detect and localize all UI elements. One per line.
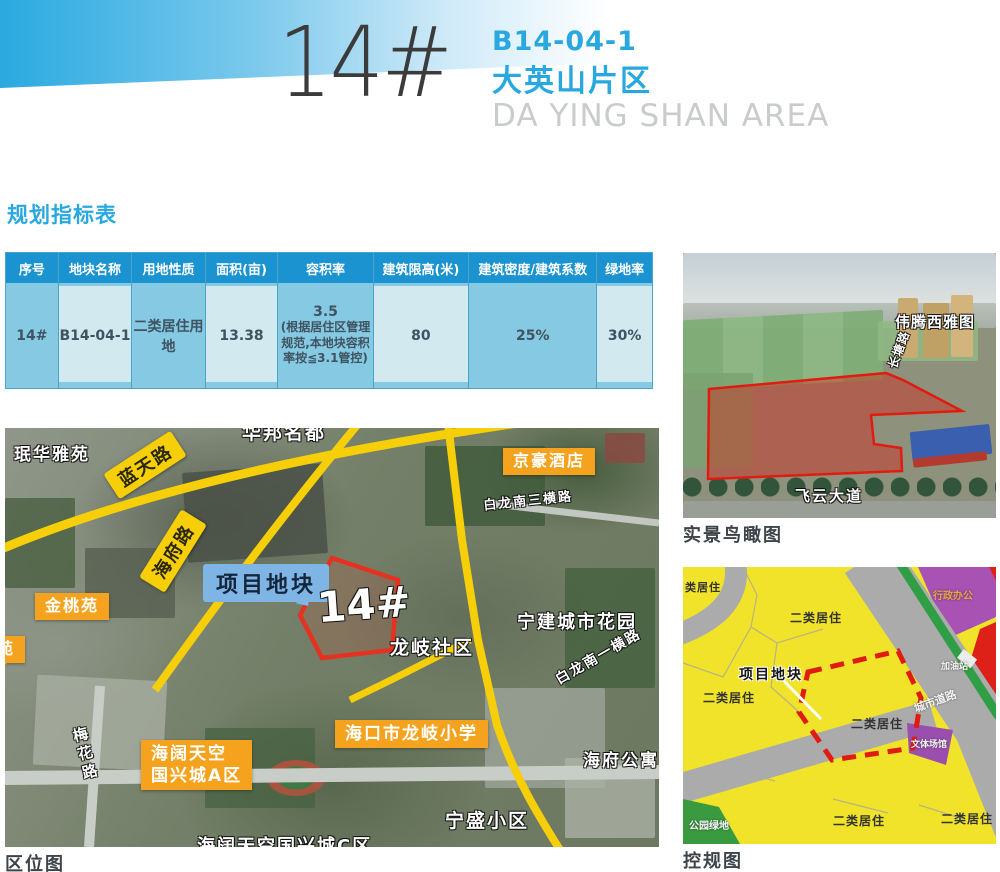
zone-label-park: 公园绿地 (689, 817, 729, 832)
zone-label-residential-top: 二类居住 (790, 609, 842, 626)
label-xingcheng-c: 海阔天空国兴城C区 (197, 832, 372, 847)
zoning-caption: 控规图 (683, 847, 743, 872)
col-green-ratio: 绿地率 (596, 253, 652, 283)
far-note: (根据居住区管理规范,本地块容积率按≦3.1管控) (278, 320, 372, 367)
zone-label-project: 项目地块 (739, 664, 803, 684)
col-height-limit: 建筑限高(米) (373, 253, 468, 283)
cell-height-limit: 80 (373, 283, 468, 388)
cell-density: 25% (468, 283, 596, 388)
zone-label-admin: 行政办公 (933, 587, 973, 602)
planning-indicator-table: 序号 地块名称 用地性质 面积(亩) 容积率 建筑限高(米) 建筑密度/建筑系数… (5, 252, 653, 389)
haikuotiankong-line1: 海阔天空 (151, 744, 227, 764)
zone-label-residential-plot: 二类居住 (851, 715, 903, 732)
label-haifu-apartment: 海府公寓 (583, 746, 659, 771)
plot-code: B14-04-1 (492, 26, 637, 57)
cell-green-ratio: 30% (596, 283, 652, 388)
plot-number: 14# (278, 6, 450, 119)
zone-label-residential-partial: 类居住 (685, 579, 721, 595)
location-map-caption: 区位图 (5, 850, 65, 872)
label-minhua: 珉华雅苑 (14, 440, 90, 465)
col-landuse: 用地性质 (131, 253, 205, 283)
location-map: 珉华雅苑 华邦名都 蓝天路 京豪酒店 白龙南三横路 海府路 项目地块 14# 龙… (5, 428, 659, 847)
label-yuan-partial: 苑 (5, 636, 25, 663)
aerial-photo: 伟腾西雅图 长塘路 飞云大道 (683, 253, 996, 518)
label-plot-mark: 14# (315, 577, 412, 632)
label-jinghao-hotel: 京豪酒店 (503, 448, 595, 475)
cell-area: 13.38 (205, 283, 278, 388)
district-name: 大英山片区 (492, 56, 652, 100)
zoning-map: 类居住 二类居住 二类居住 二类居住 二类居住 二类居住 项目地块 行政办公 加… (683, 567, 996, 844)
col-area: 面积(亩) (205, 253, 278, 283)
cell-far: 3.5 (根据居住区管理规范,本地块容积率按≦3.1管控) (277, 283, 372, 388)
label-jintao: 金桃苑 (35, 593, 109, 620)
page: 14# B14-04-1 大英山片区 DA YING SHAN AREA 规划指… (0, 0, 1000, 872)
col-serial: 序号 (6, 253, 58, 283)
aerial-caption: 实景鸟瞰图 (683, 521, 783, 547)
label-ningsheng: 宁盛小区 (445, 806, 529, 833)
aerial-overlay (683, 253, 996, 518)
col-density: 建筑密度/建筑系数 (468, 253, 596, 283)
table-data-row: 14# B14-04-1 二类居住用地 13.38 3.5 (根据居住区管理规范… (6, 283, 652, 388)
label-haikuotiankong: 海阔天空 国兴城A区 (141, 740, 252, 790)
zone-label-residential-bottom: 二类居住 (833, 812, 885, 829)
haikuotiankong-line2: 国兴城A区 (151, 766, 242, 786)
cell-serial: 14# (6, 283, 58, 388)
col-far: 容积率 (277, 253, 372, 283)
zone-label-residential-bottom-right: 二类居住 (941, 810, 993, 827)
label-ningjian: 宁建城市花园 (517, 608, 637, 634)
cell-plot-name: B14-04-1 (58, 283, 132, 388)
aerial-project-boundary (708, 373, 962, 479)
table-title: 规划指标表 (7, 199, 117, 229)
zone-label-venue: 文体场馆 (911, 737, 947, 750)
label-weiteng: 伟腾西雅图 (895, 311, 975, 332)
zone-label-gas: 加油站 (941, 659, 968, 672)
label-feiyun-avenue: 飞云大道 (795, 485, 863, 506)
label-longqi-community: 龙岐社区 (390, 633, 474, 660)
table-header-row: 序号 地块名称 用地性质 面积(亩) 容积率 建筑限高(米) 建筑密度/建筑系数… (6, 253, 652, 283)
cell-landuse: 二类居住用地 (131, 283, 205, 388)
label-longqi-school: 海口市龙岐小学 (335, 720, 488, 748)
zone-label-residential-left: 二类居住 (703, 689, 755, 706)
district-name-en: DA YING SHAN AREA (492, 98, 829, 134)
col-plot-name: 地块名称 (58, 253, 132, 283)
label-huabang: 华邦名都 (242, 428, 326, 445)
label-project-plot: 项目地块 (203, 564, 329, 602)
far-value: 3.5 (313, 304, 338, 320)
